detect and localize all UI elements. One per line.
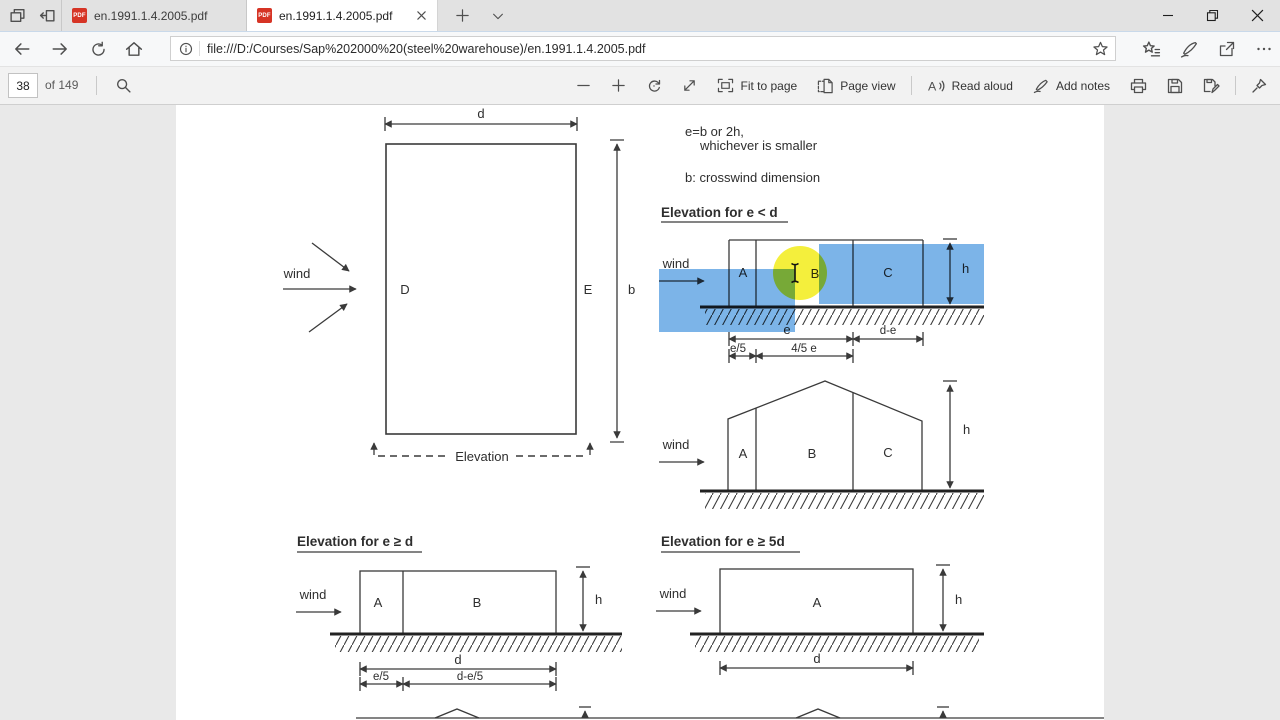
save-as-button[interactable]: [1194, 71, 1229, 101]
wind-label: wind: [659, 586, 687, 601]
cutoff-roof-peak: [435, 709, 479, 718]
zone-e-label: E: [584, 282, 593, 297]
save-icon: [1167, 78, 1183, 94]
search-icon: [115, 77, 132, 94]
dim-45e-label: 4/5 e: [791, 343, 817, 355]
minus-icon: [576, 78, 591, 93]
refresh-button[interactable]: [80, 32, 116, 66]
building-outline: [728, 381, 922, 491]
new-tab-button[interactable]: [447, 0, 477, 31]
hub-star-icon: [1142, 40, 1161, 59]
info-icon: [179, 42, 193, 56]
next-figures-cutoff: [356, 707, 1104, 718]
address-bar[interactable]: file:///D:/Courses/Sap%202000%20(steel%2…: [170, 36, 1116, 61]
fit-to-page-button[interactable]: Fit to page: [708, 71, 806, 101]
star-icon: [1093, 41, 1108, 56]
wind-arrow-diagonal-lower: [309, 304, 347, 332]
close-icon: [1251, 9, 1264, 22]
zone-a-label: A: [739, 446, 748, 461]
dim-h-label: h: [595, 592, 602, 607]
share-icon: [1218, 40, 1236, 58]
note-line-3: b: crosswind dimension: [685, 170, 820, 185]
fit-to-page-label: Fit to page: [740, 79, 797, 93]
building-outline: [360, 571, 556, 634]
url-text[interactable]: file:///D:/Courses/Sap%202000%20(steel%2…: [207, 42, 1086, 56]
navigation-bar: file:///D:/Courses/Sap%202000%20(steel%2…: [0, 32, 1280, 67]
elevation-e-ge-5d: A wind h d: [656, 565, 984, 675]
pdf-content-area[interactable]: d wind D E b Elevation: [0, 105, 1280, 720]
add-notes-pen-icon: [1033, 78, 1050, 94]
plan-dim-b-label: b: [628, 282, 635, 297]
plan-dim-d-label: d: [477, 106, 484, 121]
refresh-icon: [90, 41, 107, 58]
wind-label: wind: [662, 256, 690, 271]
print-icon: [1130, 78, 1147, 94]
tab-preview-chevron-button[interactable]: [483, 0, 513, 31]
set-tabs-aside-button[interactable]: [32, 0, 62, 31]
heading-e-lt-d: Elevation for e < d: [661, 205, 778, 220]
page-info-icon[interactable]: [179, 42, 193, 56]
browser-window: PDF en.1991.1.4.2005.pdf PDF en.1991.1.4…: [0, 0, 1280, 720]
pdf-file-icon: PDF: [72, 8, 87, 23]
pdf-page: d wind D E b Elevation: [176, 105, 1104, 720]
dim-e5-label: e/5: [373, 671, 389, 683]
dim-d-label: d: [813, 651, 820, 666]
dim-e5-label: e/5: [730, 343, 746, 355]
figure-notes: e=b or 2h, whichever is smaller b: cross…: [661, 124, 820, 222]
cursor-highlight: [773, 246, 827, 300]
close-window-button[interactable]: [1235, 0, 1280, 30]
toolbar-divider: [911, 76, 912, 95]
text-selection-highlight: [819, 244, 984, 304]
home-button[interactable]: [116, 32, 152, 66]
dim-d-minus-e5-label: d-e/5: [457, 671, 483, 683]
ground-hatching: [335, 636, 622, 652]
restore-icon: [1206, 9, 1219, 22]
zone-d-label: D: [400, 282, 409, 297]
read-aloud-label: Read aloud: [952, 79, 1013, 93]
dim-d-label: d: [454, 652, 461, 667]
chevron-down-icon: [491, 9, 505, 23]
plus-icon: [611, 78, 626, 93]
tab-title: en.1991.1.4.2005.pdf: [279, 9, 409, 23]
figure-wind-zones: d wind D E b Elevation: [176, 105, 1104, 720]
find-in-document-button[interactable]: [106, 67, 140, 104]
page-view-icon: [817, 78, 834, 94]
rotate-button[interactable]: [637, 71, 671, 101]
diagonal-arrows-icon: [682, 78, 697, 93]
page-view-label: Page view: [840, 79, 895, 93]
forward-button[interactable]: [42, 32, 78, 66]
elevation-duopitch: A B C wind h: [659, 381, 984, 509]
wind-label: wind: [299, 587, 327, 602]
elevation-e-lt-d: A B C wind h e d-e e/5: [659, 239, 984, 363]
rotate-icon: [646, 78, 662, 94]
pdf-toolbar: of 149 Fit to page Page v: [0, 67, 1280, 105]
wind-label: wind: [662, 437, 690, 452]
add-notes-label: Add notes: [1056, 79, 1110, 93]
tab-bar: PDF en.1991.1.4.2005.pdf PDF en.1991.1.4…: [0, 0, 1280, 32]
close-tab-icon[interactable]: [416, 10, 427, 21]
zone-a-label: A: [813, 595, 822, 610]
pin-toolbar-button[interactable]: [1242, 71, 1276, 101]
pen-icon: [1180, 40, 1199, 59]
hub-favorites-button[interactable]: [1133, 32, 1169, 66]
toolbar-divider: [96, 76, 97, 95]
plus-icon: [455, 8, 470, 23]
pdf-file-icon: PDF: [257, 8, 272, 23]
restore-button[interactable]: [1190, 0, 1235, 30]
share-button[interactable]: [1209, 32, 1245, 66]
add-notes-button[interactable]: Add notes: [1024, 71, 1119, 101]
dim-h-label: h: [955, 592, 962, 607]
save-button[interactable]: [1158, 71, 1192, 101]
note-line-2: whichever is smaller: [699, 138, 818, 153]
page-view-button[interactable]: Page view: [808, 71, 904, 101]
tab-title: en.1991.1.4.2005.pdf: [94, 9, 236, 23]
ground-hatching: [695, 636, 979, 652]
dim-h-label: h: [963, 422, 970, 437]
heading-e-ge-5d: Elevation for e ≥ 5d: [661, 534, 785, 549]
web-notes-button[interactable]: [1171, 32, 1207, 66]
tab-previews-icon: [9, 7, 26, 24]
heading-e-ge-d: Elevation for e ≥ d: [297, 534, 413, 549]
zone-c-label: C: [883, 445, 892, 460]
save-as-icon: [1203, 78, 1220, 94]
pdf-tool-buttons: Fit to page Page view A Read aloud Add n…: [567, 67, 1276, 104]
zoom-out-button[interactable]: [567, 71, 600, 101]
fit-to-page-icon: [717, 78, 734, 93]
tab-previews-button[interactable]: [2, 0, 32, 31]
plan-view: d wind D E b Elevation: [283, 106, 636, 464]
note-line-1: e=b or 2h,: [685, 124, 744, 139]
address-divider: [199, 41, 200, 56]
more-menu-button[interactable]: [1246, 32, 1280, 66]
zone-dividers: [756, 393, 853, 491]
plan-wind-label: wind: [283, 266, 311, 281]
dim-d-minus-e-label: d-e: [880, 325, 897, 337]
full-screen-button[interactable]: [673, 71, 706, 101]
pushpin-icon: [1251, 78, 1267, 94]
print-button[interactable]: [1121, 71, 1156, 101]
zoom-in-button[interactable]: [602, 71, 635, 101]
zone-a-label: A: [374, 595, 383, 610]
add-favorite-button[interactable]: [1093, 41, 1108, 56]
elevation-e-ge-d: A B wind h d e/5 d-e/5: [296, 567, 622, 691]
tab-1[interactable]: PDF en.1991.1.4.2005.pdf: [61, 0, 247, 31]
cutoff-roof-peak: [796, 709, 840, 718]
read-aloud-button[interactable]: A Read aloud: [918, 71, 1022, 101]
tab-2-active[interactable]: PDF en.1991.1.4.2005.pdf: [247, 0, 438, 31]
wind-arrow-diagonal-upper: [312, 243, 349, 271]
zone-b-label: B: [808, 446, 817, 461]
minimize-icon: [1162, 9, 1174, 21]
back-button[interactable]: [4, 32, 40, 66]
ellipsis-icon: [1255, 40, 1273, 58]
plan-building-outline: [386, 144, 576, 434]
forward-arrow-icon: [51, 40, 69, 58]
read-aloud-glyph: A: [928, 79, 937, 93]
home-icon: [125, 40, 143, 58]
minimize-button[interactable]: [1145, 0, 1190, 30]
page-number-input[interactable]: [8, 73, 38, 98]
ground-hatching: [705, 493, 984, 509]
elevation-cut-label: Elevation: [455, 449, 508, 464]
toolbar-divider: [1235, 76, 1236, 95]
page-total-label: of 149: [45, 67, 78, 104]
set-tabs-aside-icon: [39, 7, 56, 24]
zone-b-label: B: [473, 595, 482, 610]
back-arrow-icon: [13, 40, 31, 58]
read-aloud-icon: A: [927, 78, 946, 94]
